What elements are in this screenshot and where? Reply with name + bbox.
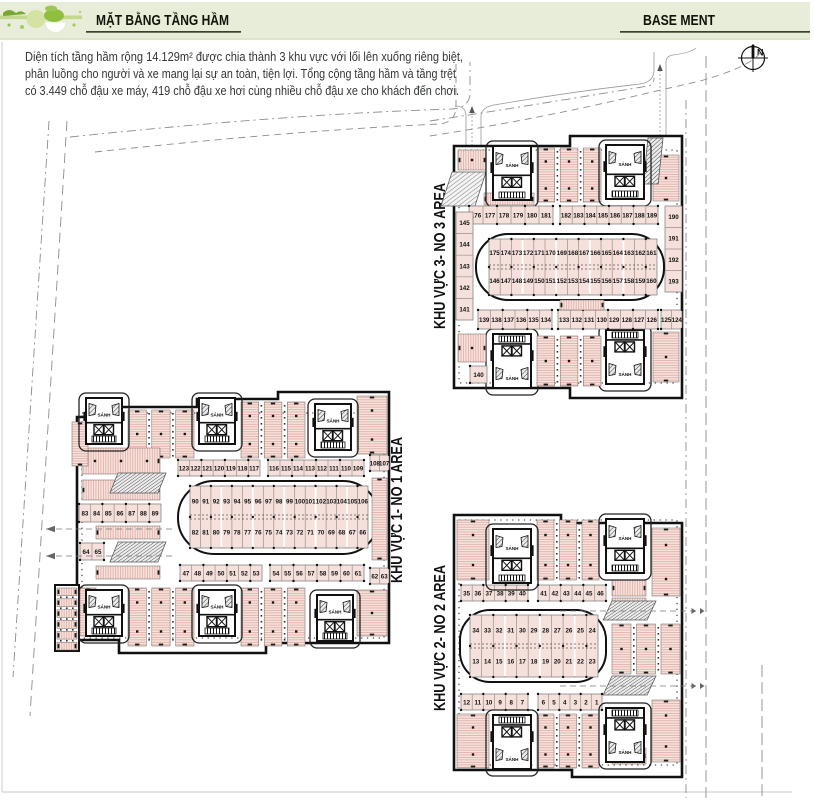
svg-text:169: 169 bbox=[557, 250, 568, 257]
svg-text:118: 118 bbox=[237, 465, 248, 472]
svg-text:188: 188 bbox=[634, 212, 645, 219]
svg-text:131: 131 bbox=[584, 317, 595, 324]
svg-text:84: 84 bbox=[93, 510, 100, 517]
svg-text:132: 132 bbox=[572, 317, 583, 324]
svg-text:94: 94 bbox=[234, 499, 241, 506]
svg-text:75: 75 bbox=[265, 530, 272, 537]
svg-text:87: 87 bbox=[128, 510, 135, 517]
svg-text:141: 141 bbox=[459, 307, 470, 314]
svg-text:184: 184 bbox=[585, 212, 596, 219]
svg-text:36: 36 bbox=[474, 590, 481, 597]
svg-text:146: 146 bbox=[489, 278, 500, 285]
svg-text:76: 76 bbox=[255, 530, 262, 537]
svg-text:187: 187 bbox=[622, 212, 633, 219]
svg-text:159: 159 bbox=[635, 278, 646, 285]
svg-text:46: 46 bbox=[597, 590, 604, 597]
svg-text:133: 133 bbox=[559, 317, 570, 324]
svg-text:21: 21 bbox=[565, 659, 572, 666]
svg-text:102: 102 bbox=[316, 499, 327, 506]
svg-text:67: 67 bbox=[349, 530, 356, 537]
svg-text:SẢNH: SẢNH bbox=[210, 603, 224, 609]
svg-text:157: 157 bbox=[613, 278, 624, 285]
svg-text:149: 149 bbox=[523, 278, 534, 285]
svg-text:65: 65 bbox=[95, 549, 102, 556]
svg-text:SẢNH: SẢNH bbox=[505, 375, 519, 381]
svg-text:18: 18 bbox=[531, 659, 538, 666]
svg-text:126: 126 bbox=[647, 317, 658, 324]
svg-text:107: 107 bbox=[379, 460, 390, 467]
svg-text:119: 119 bbox=[226, 465, 237, 472]
svg-text:139: 139 bbox=[479, 317, 490, 324]
svg-text:phân luồng cho người và xe man: phân luồng cho người và xe mang lại sự a… bbox=[25, 66, 456, 81]
svg-text:19: 19 bbox=[542, 659, 549, 666]
svg-text:10: 10 bbox=[485, 699, 492, 706]
svg-text:80: 80 bbox=[213, 530, 220, 537]
svg-text:143: 143 bbox=[459, 263, 470, 270]
svg-text:138: 138 bbox=[491, 317, 502, 324]
svg-text:Diện tích tầng hầm rộng 14.129: Diện tích tầng hầm rộng 14.129m² được ch… bbox=[25, 49, 463, 64]
svg-text:144: 144 bbox=[459, 242, 470, 249]
svg-text:97: 97 bbox=[265, 499, 272, 506]
svg-text:167: 167 bbox=[579, 250, 590, 257]
svg-text:140: 140 bbox=[473, 372, 484, 379]
svg-text:177: 177 bbox=[485, 212, 496, 219]
svg-text:63: 63 bbox=[381, 573, 388, 580]
svg-text:124: 124 bbox=[672, 317, 683, 324]
svg-text:121: 121 bbox=[202, 465, 213, 472]
svg-text:114: 114 bbox=[293, 465, 304, 472]
svg-text:SẢNH: SẢNH bbox=[618, 161, 632, 167]
svg-text:153: 153 bbox=[568, 278, 579, 285]
svg-text:178: 178 bbox=[499, 212, 510, 219]
svg-text:8: 8 bbox=[509, 699, 513, 706]
svg-text:16: 16 bbox=[507, 659, 514, 666]
svg-text:113: 113 bbox=[305, 465, 316, 472]
svg-text:166: 166 bbox=[590, 250, 601, 257]
svg-text:171: 171 bbox=[534, 250, 545, 257]
svg-text:32: 32 bbox=[496, 628, 503, 635]
svg-text:55: 55 bbox=[284, 570, 291, 577]
svg-text:122: 122 bbox=[190, 465, 201, 472]
svg-text:25: 25 bbox=[577, 628, 584, 635]
svg-text:44: 44 bbox=[574, 590, 581, 597]
svg-text:KHU VỰC 2- NO 2 AREA: KHU VỰC 2- NO 2 AREA bbox=[432, 565, 449, 711]
svg-text:134: 134 bbox=[541, 317, 552, 324]
svg-text:110: 110 bbox=[341, 465, 352, 472]
svg-text:79: 79 bbox=[223, 530, 230, 537]
svg-text:28: 28 bbox=[542, 628, 549, 635]
svg-text:26: 26 bbox=[565, 628, 572, 635]
svg-text:103: 103 bbox=[326, 499, 337, 506]
svg-text:101: 101 bbox=[305, 499, 316, 506]
svg-text:BASE MENT: BASE MENT bbox=[643, 13, 715, 29]
svg-text:58: 58 bbox=[319, 570, 326, 577]
svg-text:SẢNH: SẢNH bbox=[97, 603, 111, 609]
svg-text:62: 62 bbox=[371, 573, 378, 580]
svg-text:154: 154 bbox=[579, 278, 590, 285]
svg-text:117: 117 bbox=[249, 465, 260, 472]
svg-text:20: 20 bbox=[554, 659, 561, 666]
svg-text:135: 135 bbox=[528, 317, 539, 324]
svg-text:92: 92 bbox=[213, 499, 220, 506]
svg-text:71: 71 bbox=[307, 530, 314, 537]
svg-text:45: 45 bbox=[586, 590, 593, 597]
svg-text:38: 38 bbox=[497, 590, 504, 597]
svg-text:130: 130 bbox=[597, 317, 608, 324]
svg-text:125: 125 bbox=[661, 317, 672, 324]
svg-text:SẢNH: SẢNH bbox=[505, 162, 519, 168]
svg-text:136: 136 bbox=[516, 317, 527, 324]
svg-text:115: 115 bbox=[281, 465, 292, 472]
svg-text:105: 105 bbox=[347, 499, 358, 506]
svg-text:SẢNH: SẢNH bbox=[618, 749, 632, 755]
svg-text:129: 129 bbox=[609, 317, 620, 324]
svg-text:60: 60 bbox=[343, 570, 350, 577]
svg-text:33: 33 bbox=[484, 628, 491, 635]
svg-text:MẶT BẰNG TẦNG HẦM: MẶT BẰNG TẦNG HẦM bbox=[96, 11, 229, 29]
svg-text:170: 170 bbox=[545, 250, 556, 257]
svg-text:3: 3 bbox=[574, 699, 578, 706]
svg-text:173: 173 bbox=[512, 250, 523, 257]
svg-text:11: 11 bbox=[475, 699, 482, 706]
svg-text:SẢNH: SẢNH bbox=[328, 608, 342, 614]
svg-text:81: 81 bbox=[202, 530, 209, 537]
svg-text:174: 174 bbox=[501, 250, 512, 257]
svg-text:42: 42 bbox=[552, 590, 559, 597]
svg-text:185: 185 bbox=[598, 212, 609, 219]
svg-text:175: 175 bbox=[489, 250, 500, 257]
svg-text:39: 39 bbox=[508, 590, 515, 597]
svg-text:22: 22 bbox=[577, 659, 584, 666]
svg-text:SẢNH: SẢNH bbox=[618, 371, 632, 377]
svg-text:104: 104 bbox=[337, 499, 348, 506]
svg-text:15: 15 bbox=[496, 659, 503, 666]
svg-text:161: 161 bbox=[646, 250, 657, 257]
svg-text:54: 54 bbox=[272, 570, 279, 577]
svg-text:148: 148 bbox=[512, 278, 523, 285]
svg-text:61: 61 bbox=[355, 570, 362, 577]
svg-text:13: 13 bbox=[472, 659, 479, 666]
svg-text:152: 152 bbox=[557, 278, 568, 285]
svg-text:160: 160 bbox=[646, 278, 657, 285]
svg-text:192: 192 bbox=[668, 257, 679, 264]
svg-text:145: 145 bbox=[459, 220, 470, 227]
svg-text:89: 89 bbox=[152, 510, 159, 517]
svg-text:190: 190 bbox=[668, 214, 679, 221]
svg-text:49: 49 bbox=[206, 570, 213, 577]
svg-text:37: 37 bbox=[485, 590, 492, 597]
svg-text:14: 14 bbox=[484, 659, 491, 666]
svg-text:41: 41 bbox=[540, 590, 547, 597]
svg-text:181: 181 bbox=[541, 212, 552, 219]
svg-text:53: 53 bbox=[253, 570, 260, 577]
svg-text:70: 70 bbox=[317, 530, 324, 537]
svg-text:180: 180 bbox=[527, 212, 538, 219]
svg-text:64: 64 bbox=[83, 549, 90, 556]
svg-text:72: 72 bbox=[296, 530, 303, 537]
svg-text:179: 179 bbox=[513, 212, 524, 219]
svg-text:66: 66 bbox=[359, 530, 366, 537]
svg-text:30: 30 bbox=[519, 628, 526, 635]
svg-text:183: 183 bbox=[573, 212, 584, 219]
svg-text:96: 96 bbox=[255, 499, 262, 506]
svg-text:2: 2 bbox=[584, 699, 588, 706]
svg-text:116: 116 bbox=[269, 465, 280, 472]
svg-text:158: 158 bbox=[624, 278, 635, 285]
svg-text:156: 156 bbox=[601, 278, 612, 285]
svg-text:93: 93 bbox=[223, 499, 230, 506]
svg-text:74: 74 bbox=[276, 530, 283, 537]
svg-text:43: 43 bbox=[563, 590, 570, 597]
svg-text:150: 150 bbox=[534, 278, 545, 285]
svg-text:SẢNH: SẢNH bbox=[505, 756, 519, 762]
svg-text:có 3.449 chỗ đậu xe máy, 419 c: có 3.449 chỗ đậu xe máy, 419 chỗ đậu xe … bbox=[25, 83, 459, 98]
svg-text:23: 23 bbox=[589, 659, 596, 666]
svg-text:9: 9 bbox=[498, 699, 502, 706]
svg-text:172: 172 bbox=[523, 250, 534, 257]
svg-text:68: 68 bbox=[338, 530, 345, 537]
svg-text:17: 17 bbox=[519, 659, 526, 666]
svg-text:95: 95 bbox=[244, 499, 251, 506]
svg-text:29: 29 bbox=[531, 628, 538, 635]
svg-text:112: 112 bbox=[317, 465, 328, 472]
svg-text:164: 164 bbox=[613, 250, 624, 257]
svg-text:128: 128 bbox=[622, 317, 633, 324]
svg-text:1: 1 bbox=[595, 699, 599, 706]
svg-text:50: 50 bbox=[218, 570, 225, 577]
svg-text:111: 111 bbox=[329, 465, 339, 472]
svg-text:51: 51 bbox=[229, 570, 236, 577]
svg-text:52: 52 bbox=[241, 570, 248, 577]
svg-text:59: 59 bbox=[331, 570, 338, 577]
svg-text:142: 142 bbox=[459, 285, 470, 292]
svg-text:34: 34 bbox=[472, 628, 479, 635]
svg-text:77: 77 bbox=[244, 530, 251, 537]
svg-text:186: 186 bbox=[610, 212, 621, 219]
svg-text:189: 189 bbox=[647, 212, 658, 219]
svg-text:78: 78 bbox=[234, 530, 241, 537]
svg-text:98: 98 bbox=[276, 499, 283, 506]
svg-text:83: 83 bbox=[81, 510, 88, 517]
svg-text:91: 91 bbox=[202, 499, 209, 506]
svg-text:182: 182 bbox=[561, 212, 572, 219]
svg-text:SẢNH: SẢNH bbox=[97, 411, 111, 417]
svg-text:12: 12 bbox=[463, 699, 470, 706]
svg-text:27: 27 bbox=[554, 628, 561, 635]
svg-text:88: 88 bbox=[140, 510, 147, 517]
svg-text:SẢNH: SẢNH bbox=[505, 545, 519, 551]
svg-text:151: 151 bbox=[545, 278, 556, 285]
svg-text:168: 168 bbox=[568, 250, 579, 257]
svg-text:109: 109 bbox=[353, 465, 364, 472]
svg-text:69: 69 bbox=[328, 530, 335, 537]
svg-text:KHU VỰC 1- NO 1 AREA: KHU VỰC 1- NO 1 AREA bbox=[389, 437, 406, 583]
svg-text:4: 4 bbox=[563, 699, 567, 706]
svg-text:191: 191 bbox=[668, 236, 679, 243]
svg-text:31: 31 bbox=[507, 628, 514, 635]
svg-text:99: 99 bbox=[286, 499, 293, 506]
svg-text:86: 86 bbox=[117, 510, 124, 517]
svg-text:163: 163 bbox=[624, 250, 635, 257]
svg-text:90: 90 bbox=[192, 499, 199, 506]
svg-text:SẢNH: SẢNH bbox=[326, 417, 340, 423]
svg-text:5: 5 bbox=[552, 699, 556, 706]
svg-text:6: 6 bbox=[542, 699, 546, 706]
svg-text:73: 73 bbox=[286, 530, 293, 537]
svg-text:57: 57 bbox=[308, 570, 315, 577]
svg-text:100: 100 bbox=[295, 499, 306, 506]
svg-text:123: 123 bbox=[179, 465, 190, 472]
svg-text:82: 82 bbox=[192, 530, 199, 537]
svg-text:85: 85 bbox=[105, 510, 112, 517]
svg-text:40: 40 bbox=[519, 590, 526, 597]
svg-text:127: 127 bbox=[634, 317, 645, 324]
svg-text:SẢNH: SẢNH bbox=[618, 535, 632, 541]
svg-text:47: 47 bbox=[182, 570, 189, 577]
svg-text:165: 165 bbox=[601, 250, 612, 257]
svg-text:56: 56 bbox=[296, 570, 303, 577]
svg-text:106: 106 bbox=[358, 499, 369, 506]
svg-text:162: 162 bbox=[635, 250, 646, 257]
svg-text:120: 120 bbox=[214, 465, 225, 472]
svg-text:48: 48 bbox=[194, 570, 201, 577]
svg-text:7: 7 bbox=[521, 699, 525, 706]
svg-text:SẢNH: SẢNH bbox=[210, 411, 224, 417]
svg-text:24: 24 bbox=[589, 628, 596, 635]
svg-text:35: 35 bbox=[463, 590, 470, 597]
svg-text:155: 155 bbox=[590, 278, 601, 285]
svg-text:193: 193 bbox=[668, 279, 679, 286]
svg-text:137: 137 bbox=[504, 317, 515, 324]
svg-text:147: 147 bbox=[501, 278, 512, 285]
